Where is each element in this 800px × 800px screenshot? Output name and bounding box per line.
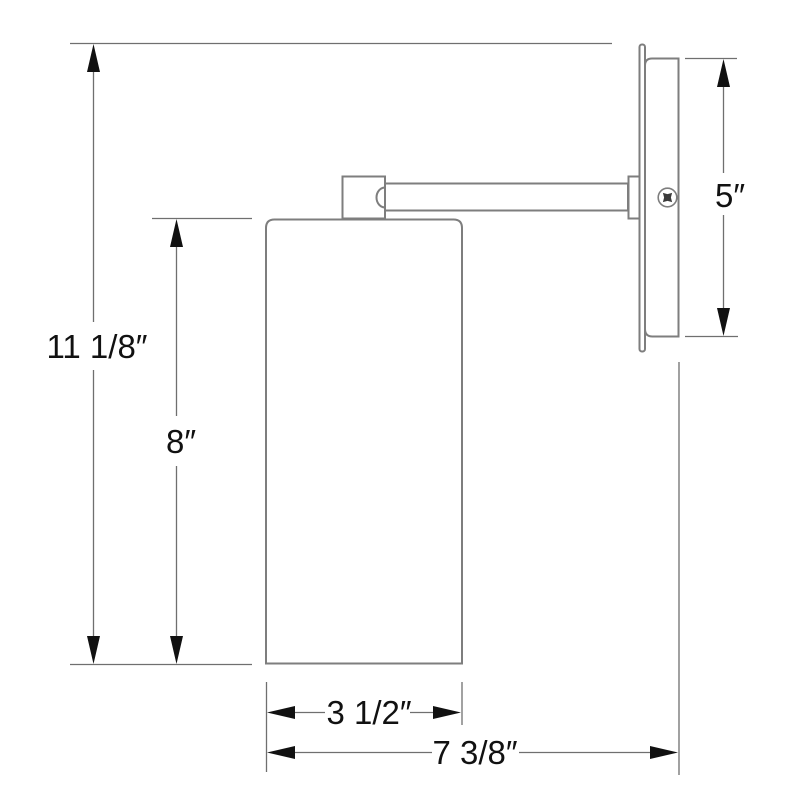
arrow-right-shade-width-icon (433, 706, 461, 719)
arrow-down-backplate-height-icon (717, 308, 730, 336)
knuckle-block-shape (343, 177, 386, 219)
arrow-up-shade-height-icon (170, 219, 183, 247)
arrow-left-shade-width-icon (267, 706, 295, 719)
arrow-right-overall-depth-icon (650, 746, 678, 759)
arrow-left-overall-depth-icon (267, 746, 295, 759)
shade-height-label: 8″ (166, 423, 196, 460)
arm-shape (385, 184, 628, 211)
sconce-outline (266, 45, 679, 664)
backplate-height-label: 5″ (715, 177, 745, 214)
overall-depth-label: 7 3/8″ (432, 734, 517, 771)
dimension-drawing: 11 1/8″ 8″ 5″ 3 1/2″ 7 3/8″ (0, 0, 800, 800)
arrow-down-overall-height-icon (87, 636, 100, 664)
overall-height-label: 11 1/8″ (47, 328, 148, 365)
arrow-up-backplate-height-icon (717, 59, 730, 87)
sconce-dimension-svg: 11 1/8″ 8″ 5″ 3 1/2″ 7 3/8″ (0, 0, 800, 800)
shade-width-label: 3 1/2″ (326, 694, 411, 731)
arrow-up-overall-height-icon (87, 44, 100, 72)
arrow-down-shade-height-icon (170, 636, 183, 664)
shade-shape (266, 220, 462, 664)
